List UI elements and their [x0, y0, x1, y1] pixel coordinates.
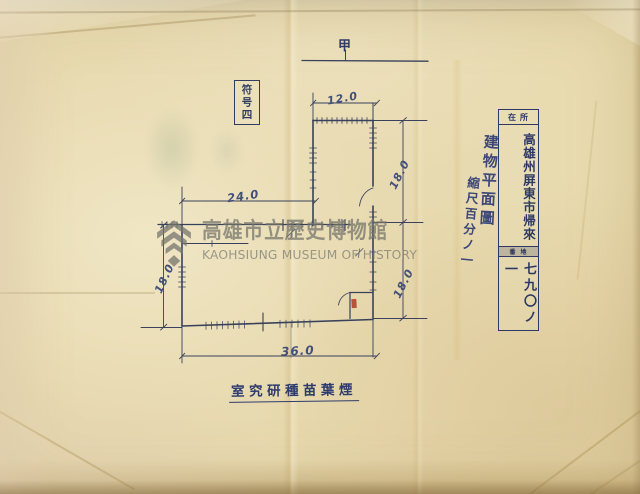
watermark: 高雄市立歷史博物館 KAOHSIUNG MUSEUM OF HISTORY	[155, 220, 421, 267]
watermark-text: 高雄市立歷史博物館 KAOHSIUNG MUSEUM OF HISTORY	[202, 220, 421, 262]
address-stamp-box: 在所 高雄州屏東市帰來 番地 七九〇ノ一	[498, 109, 539, 331]
scanned-document: 甲 符号四 12.0 24.0 36.0 18.0 18.0 18.0 建物平面…	[0, 0, 640, 494]
symbol-number-box: 符号四	[234, 80, 260, 125]
address-box-lot-number: 七九〇ノ一	[499, 257, 538, 330]
museum-logo-icon	[155, 220, 193, 267]
address-box-lot-label: 番地	[499, 246, 538, 257]
north-symbol: 甲	[338, 35, 351, 54]
dimension-bottom: 36.0	[281, 343, 315, 359]
watermark-subtitle: KAOHSIUNG MUSEUM OF HISTORY	[202, 247, 417, 262]
address-box-header: 在所	[499, 110, 538, 125]
address-box-locality: 高雄州屏東市帰來	[499, 125, 538, 246]
watermark-title: 高雄市立歷史博物館	[202, 220, 399, 244]
caption-title: 室究研種苗葉煙	[229, 378, 359, 403]
